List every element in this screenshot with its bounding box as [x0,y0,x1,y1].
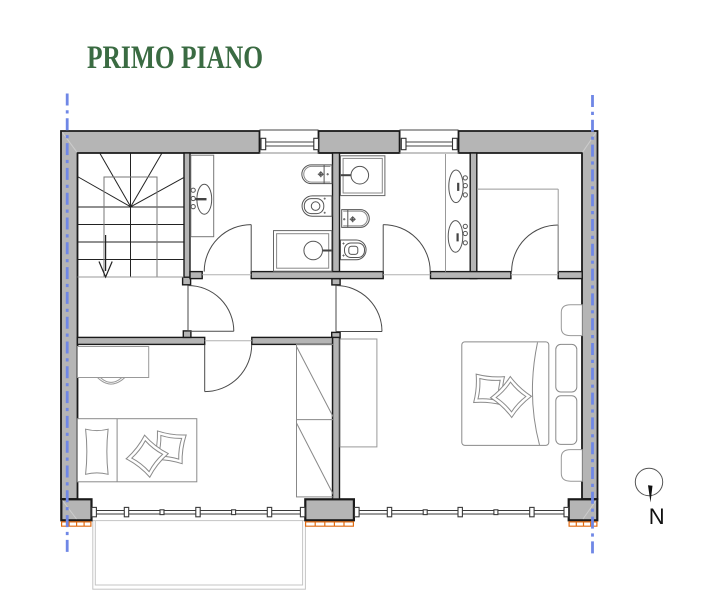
svg-text:N: N [649,504,665,529]
svg-text:PRIMO PIANO: PRIMO PIANO [87,40,263,76]
